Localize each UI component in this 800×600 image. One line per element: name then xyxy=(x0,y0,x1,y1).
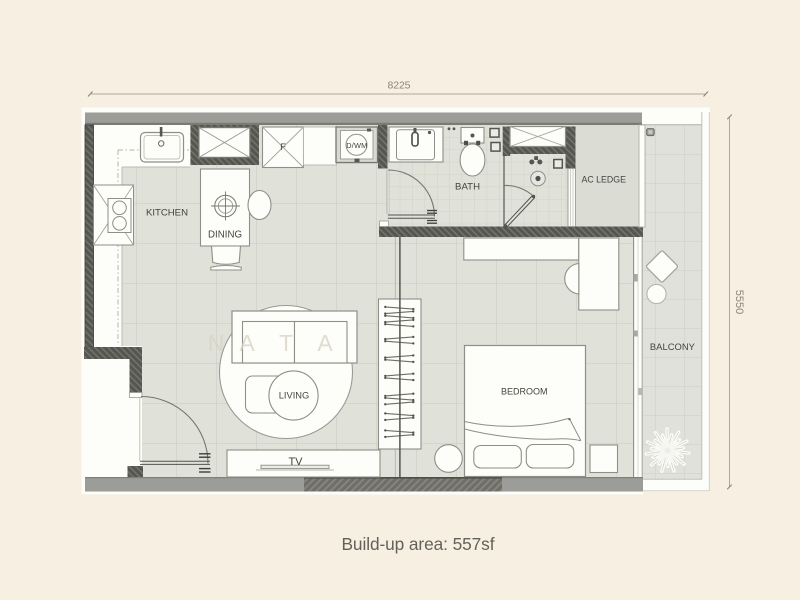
svg-text:AC LEDGE: AC LEDGE xyxy=(581,175,626,185)
svg-text:T: T xyxy=(279,330,293,356)
svg-text:DINING: DINING xyxy=(208,230,242,241)
svg-text:LIVING: LIVING xyxy=(279,391,310,401)
svg-text:KITCHEN: KITCHEN xyxy=(146,208,188,219)
svg-text:5550: 5550 xyxy=(733,290,745,315)
svg-text:8225: 8225 xyxy=(388,80,411,92)
svg-text:F: F xyxy=(280,142,286,153)
svg-text:TV: TV xyxy=(289,456,304,468)
svg-text:BALCONY: BALCONY xyxy=(650,341,696,352)
svg-text:Build-up area: 557sf: Build-up area: 557sf xyxy=(342,534,495,554)
svg-text:N: N xyxy=(208,330,225,356)
svg-text:A: A xyxy=(239,330,255,356)
svg-text:D/WM: D/WM xyxy=(346,141,367,150)
svg-text:BATH: BATH xyxy=(455,182,480,193)
svg-text:BEDROOM: BEDROOM xyxy=(501,386,548,396)
svg-text:A: A xyxy=(317,330,333,356)
